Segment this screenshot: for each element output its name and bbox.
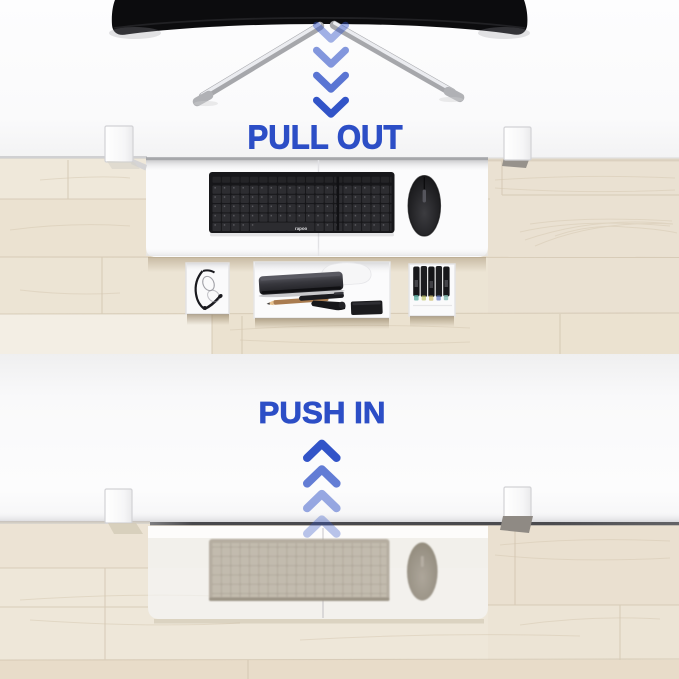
- svg-text:PUSH IN: PUSH IN: [259, 395, 386, 430]
- svg-text:PULL OUT: PULL OUT: [248, 119, 403, 156]
- svg-text:rapoo: rapoo: [295, 226, 308, 231]
